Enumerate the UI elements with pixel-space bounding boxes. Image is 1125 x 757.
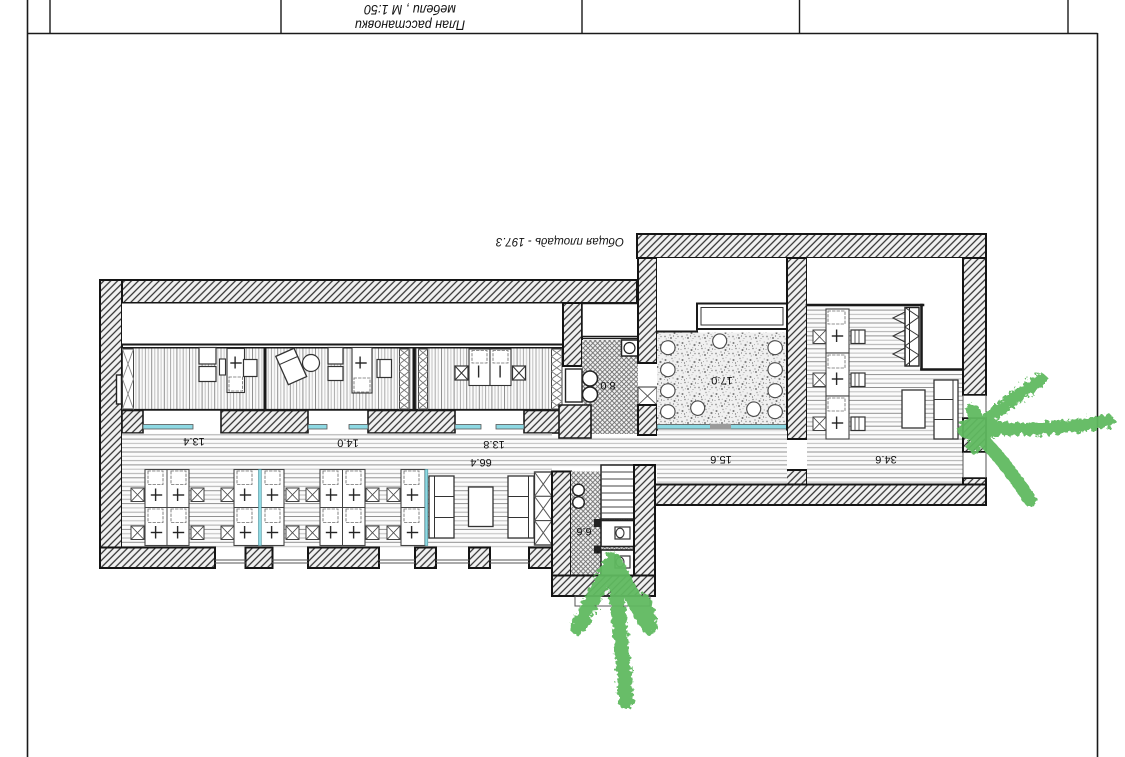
svg-text:13.4: 13.4 [183, 435, 204, 447]
svg-text:17.0: 17.0 [711, 374, 732, 386]
svg-text:66.4: 66.4 [470, 456, 491, 468]
svg-text:6.6: 6.6 [576, 525, 591, 537]
svg-text:8.0: 8.0 [600, 379, 615, 391]
svg-text:34.6: 34.6 [875, 453, 896, 465]
svg-text:15.6: 15.6 [710, 453, 731, 465]
svg-text:14.0: 14.0 [337, 437, 358, 449]
svg-text:13.8: 13.8 [483, 438, 504, 450]
